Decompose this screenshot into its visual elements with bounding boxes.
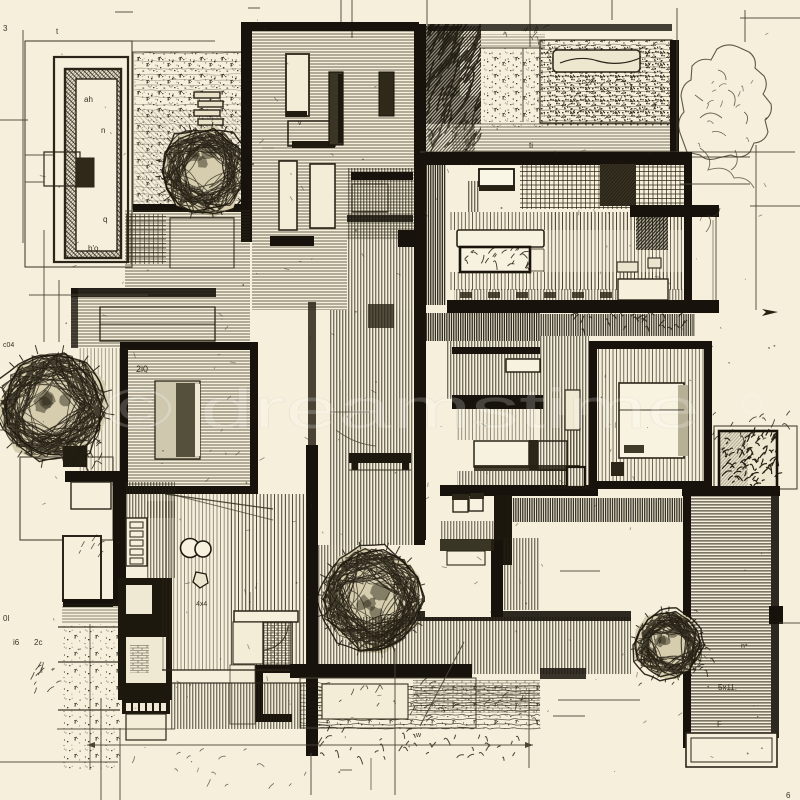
svg-text:0l: 0l (3, 614, 9, 623)
svg-text:© dreamstime: © dreamstime (103, 377, 700, 441)
svg-text:2c: 2c (34, 638, 42, 647)
svg-text:ah: ah (84, 95, 93, 104)
svg-text:w: w (415, 732, 422, 739)
svg-text:5x11.: 5x11. (718, 683, 737, 692)
svg-text:i6: i6 (13, 638, 20, 647)
svg-text:q: q (103, 215, 107, 224)
svg-text:4x4: 4x4 (196, 601, 207, 608)
svg-text:6: 6 (786, 791, 791, 800)
svg-text:b'o: b'o (88, 244, 99, 253)
svg-text:n: n (101, 126, 105, 135)
svg-text:v: v (298, 120, 302, 127)
svg-text:c04: c04 (3, 342, 14, 349)
svg-text:F: F (717, 720, 722, 729)
svg-text:n: n (741, 643, 745, 650)
svg-text:3: 3 (3, 24, 8, 33)
